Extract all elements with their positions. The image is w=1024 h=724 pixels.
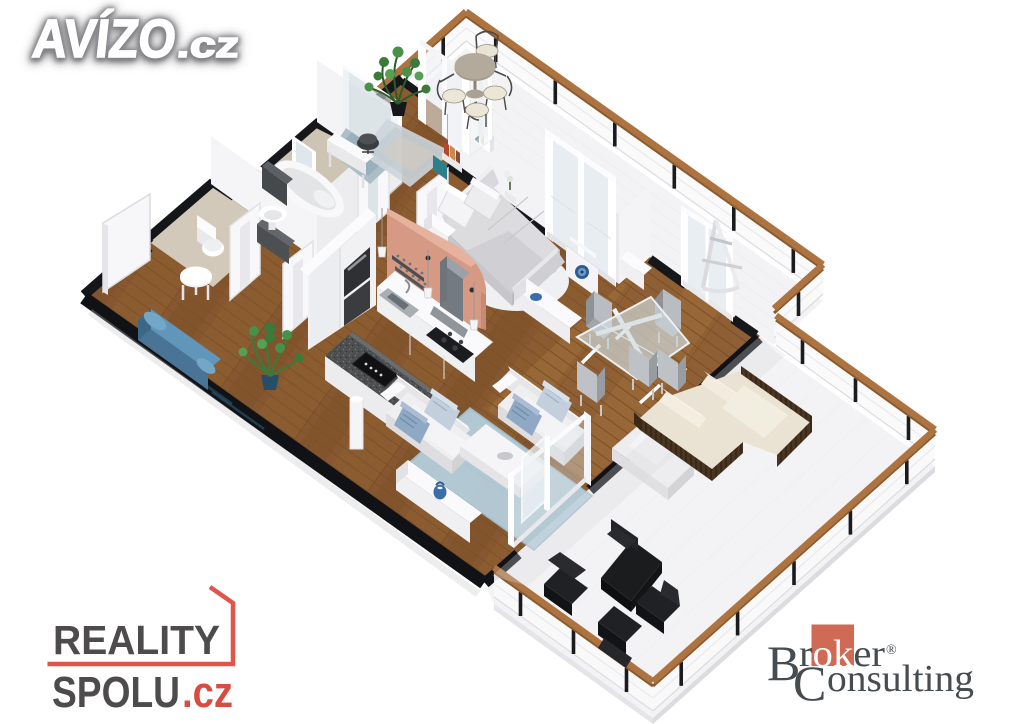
svg-text:C: C: [793, 655, 826, 711]
svg-text:®: ®: [886, 643, 897, 658]
svg-text:onsulting: onsulting: [827, 658, 974, 700]
